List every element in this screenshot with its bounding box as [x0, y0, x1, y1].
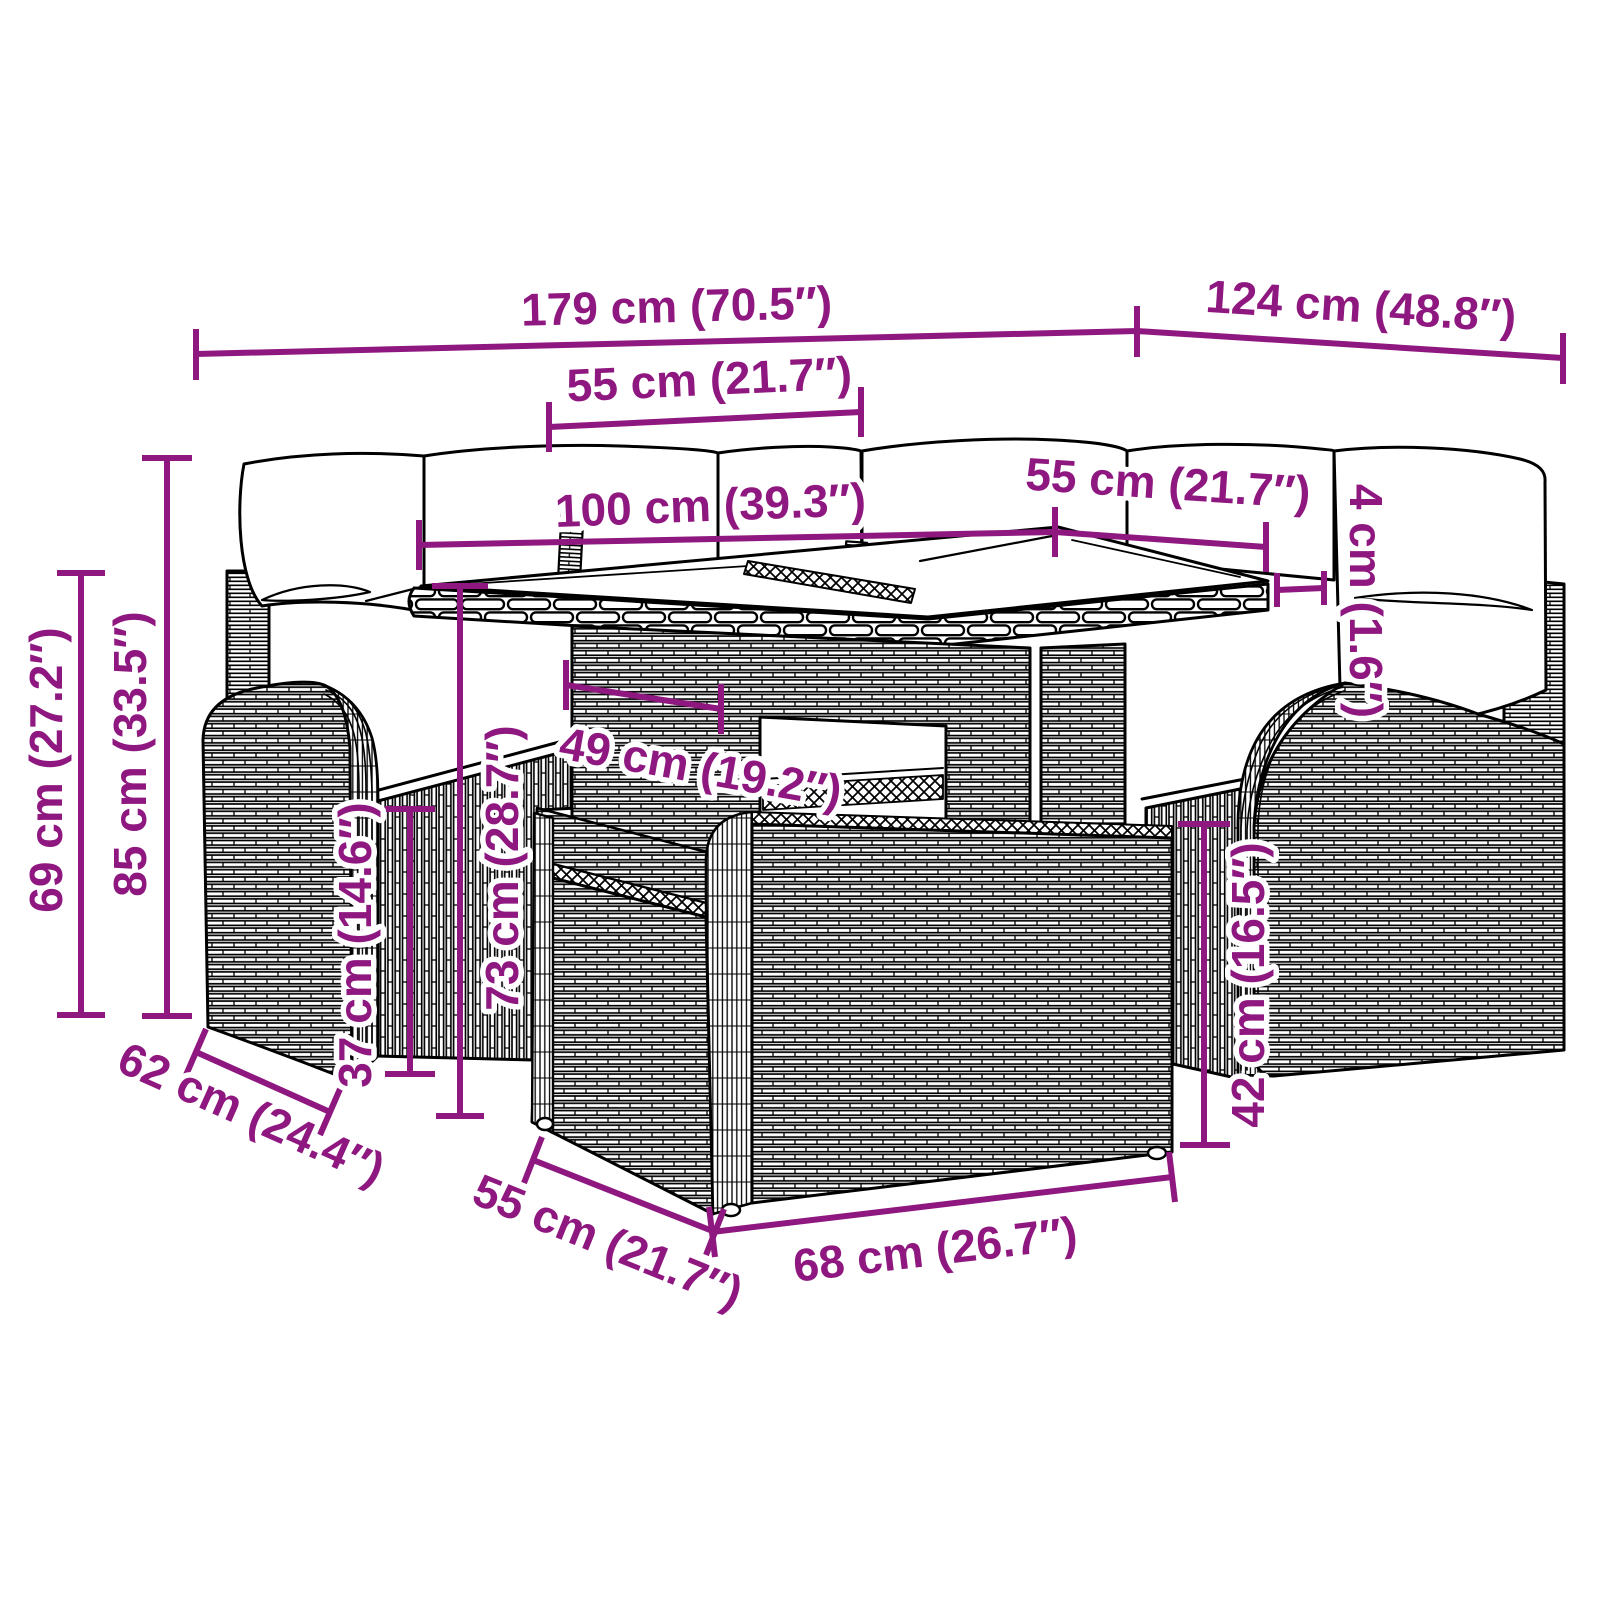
svg-text:69 cm (27.2″): 69 cm (27.2″)	[20, 627, 72, 912]
svg-text:73 cm (28.7″): 73 cm (28.7″)	[476, 725, 528, 1010]
svg-text:85 cm (33.5″): 85 cm (33.5″)	[104, 611, 156, 896]
svg-text:37 cm (14.6″): 37 cm (14.6″)	[329, 802, 381, 1087]
svg-text:42 cm (16.5″): 42 cm (16.5″)	[1222, 842, 1274, 1127]
svg-text:4 cm (1.6″): 4 cm (1.6″)	[1340, 484, 1392, 718]
svg-text:179 cm (70.5″): 179 cm (70.5″)	[521, 276, 833, 336]
